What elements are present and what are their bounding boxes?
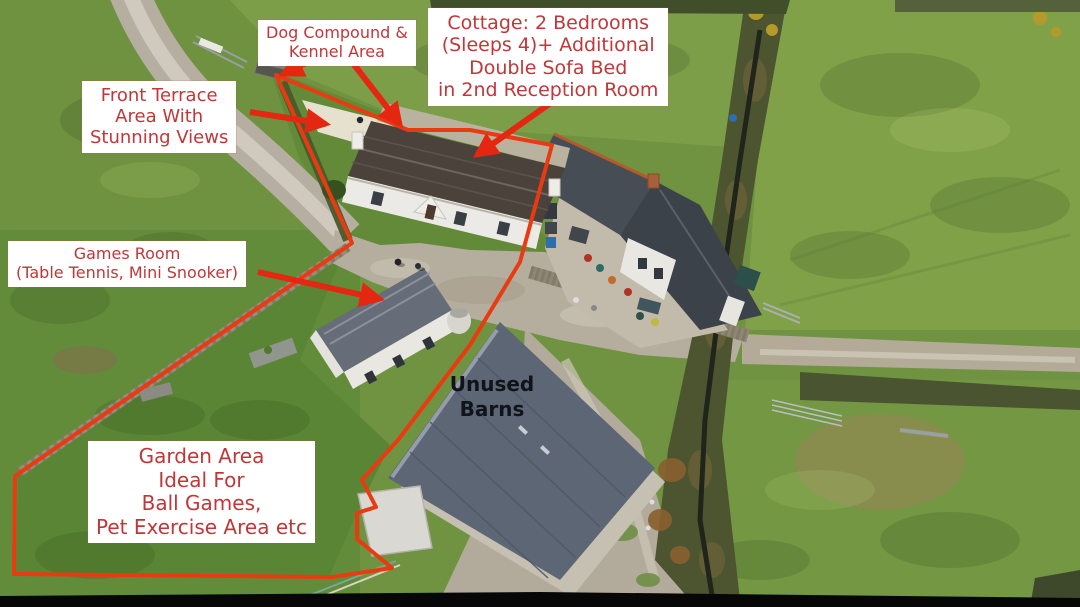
annotation-line: Barns	[436, 397, 548, 422]
annotation-line: (Sleeps 4)+ Additional	[438, 34, 658, 56]
bed-plants	[264, 346, 272, 354]
chimney	[549, 179, 560, 196]
annotation-unused-barns: Unused Barns	[436, 372, 548, 422]
annotation-games-room: Games Room (Table Tennis, Mini Snooker)	[8, 241, 246, 287]
annotation-line: Games Room	[16, 245, 238, 264]
annotation-garden-area: Garden Area Ideal For Ball Games, Pet Ex…	[88, 441, 315, 543]
worn-grass-patch	[53, 346, 117, 374]
hedge-top-right	[895, 0, 1080, 12]
annotated-aerial-photo: Dog Compound & Kennel Area Cottage: 2 Be…	[0, 0, 1080, 607]
chimney	[352, 132, 363, 149]
field-right	[745, 0, 1080, 330]
annotation-line: Pet Exercise Area etc	[96, 516, 307, 540]
window	[638, 258, 647, 269]
person-on-terrace	[357, 117, 363, 123]
bin	[545, 222, 557, 234]
annotation-line: Stunning Views	[90, 127, 228, 148]
annotation-line: Front Terrace	[90, 85, 228, 106]
annotation-line: Dog Compound &	[266, 24, 408, 43]
annotation-line: Kennel Area	[266, 43, 408, 62]
annotation-line: Garden Area	[96, 445, 307, 469]
annotation-line: Ball Games,	[96, 492, 307, 516]
window	[654, 268, 663, 279]
annotation-line: Cottage: 2 Bedrooms	[438, 12, 658, 34]
annotation-line: Area With	[90, 106, 228, 127]
water-tank-top	[450, 308, 468, 318]
annotation-line: Unused	[436, 372, 548, 397]
annotation-front-terrace: Front Terrace Area With Stunning Views	[82, 81, 236, 153]
annotation-cottage: Cottage: 2 Bedrooms (Sleeps 4)+ Addition…	[428, 8, 668, 106]
annotation-line: in 2nd Reception Room	[438, 79, 658, 101]
annotation-dog-compound: Dog Compound & Kennel Area	[258, 20, 416, 66]
blue-bin	[546, 237, 556, 248]
brick-chimney	[648, 174, 659, 188]
annotation-line: Double Sofa Bed	[438, 57, 658, 79]
blue-barrel	[729, 114, 737, 122]
annotation-line: (Table Tennis, Mini Snooker)	[16, 264, 238, 283]
annotation-line: Ideal For	[96, 469, 307, 493]
